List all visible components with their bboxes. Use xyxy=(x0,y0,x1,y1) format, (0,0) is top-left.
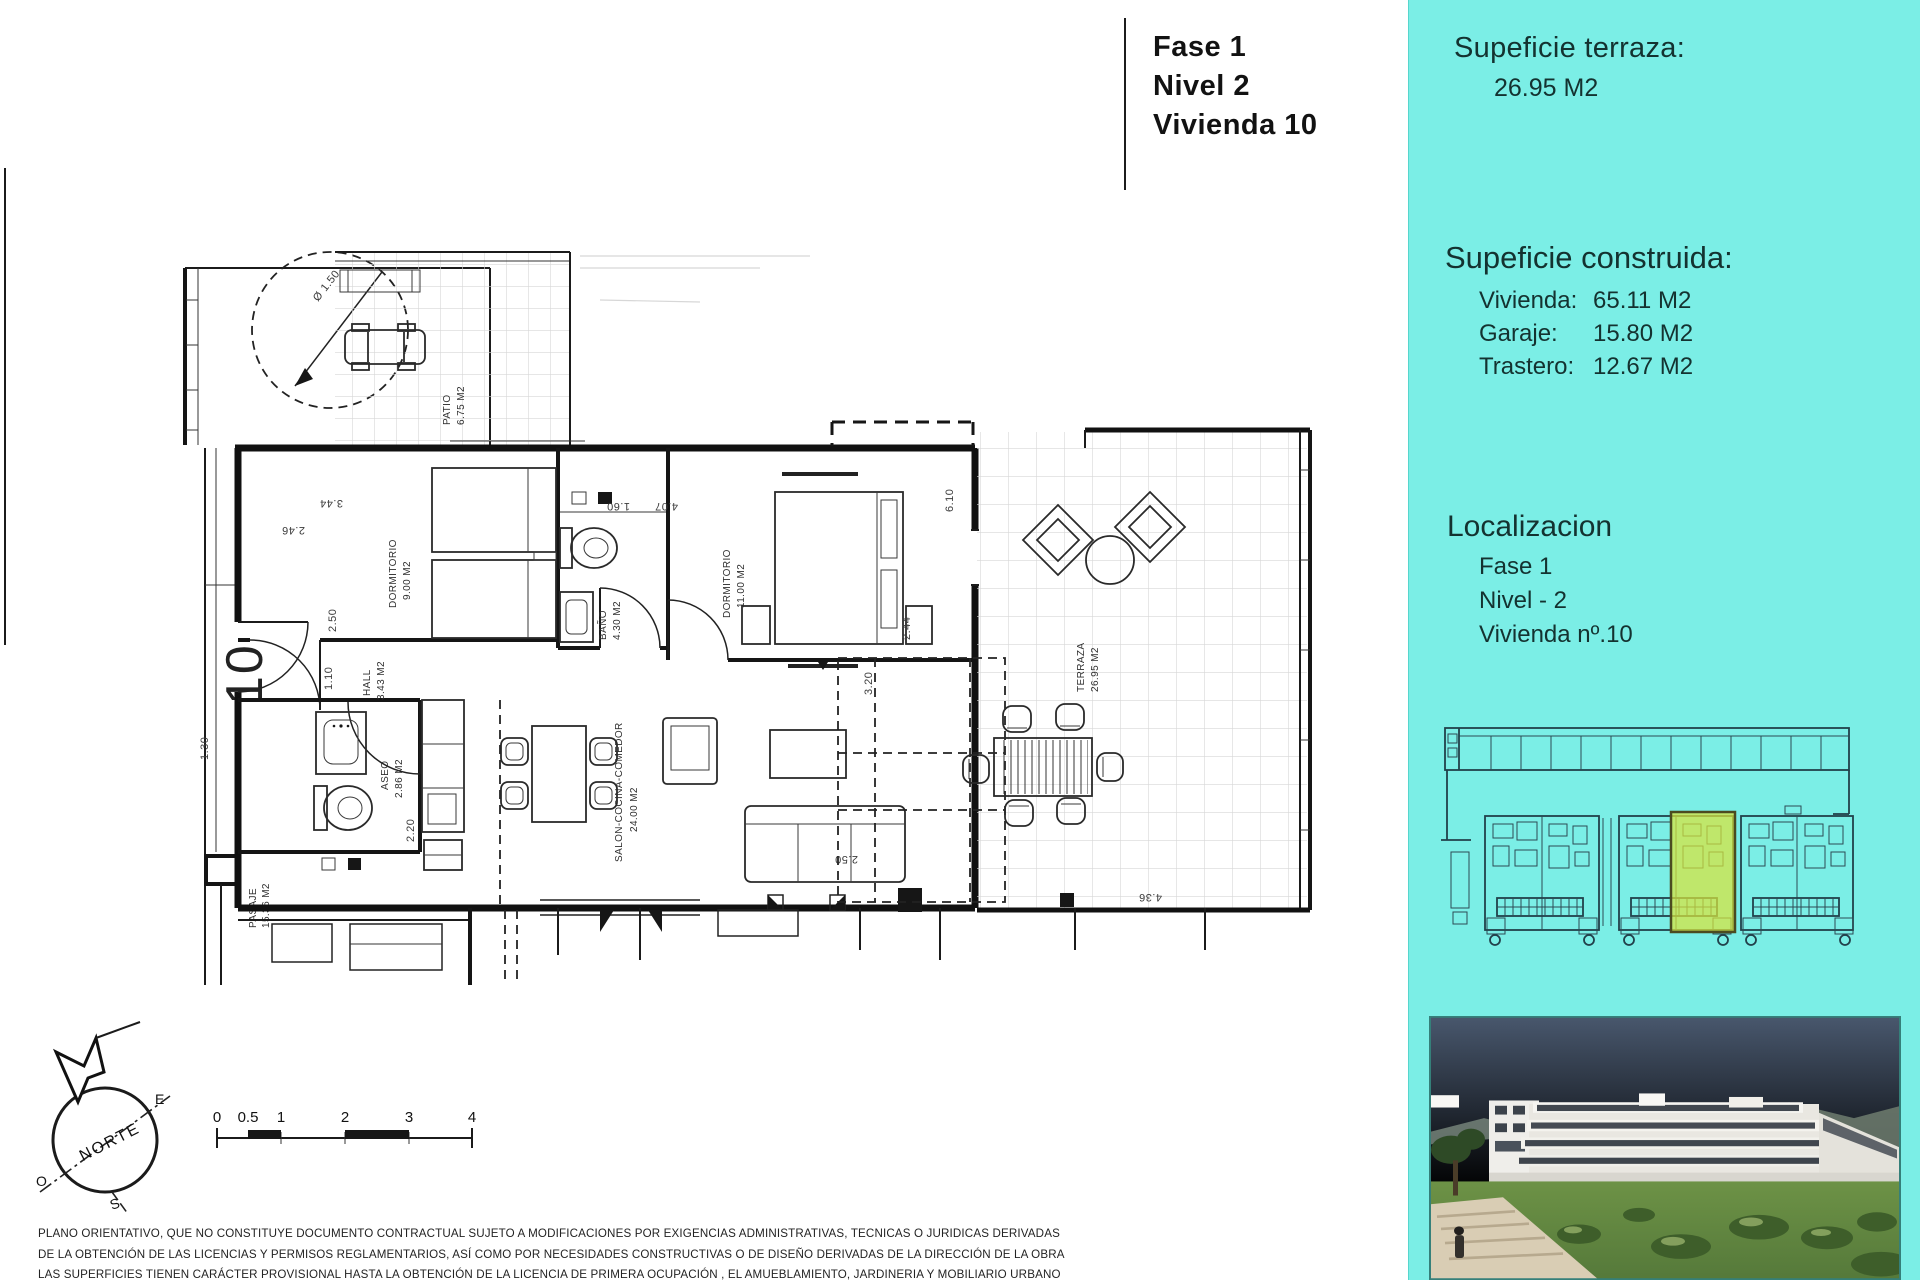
label-patio-name: PATIO xyxy=(442,394,453,425)
label-hall-name: HALL xyxy=(362,669,373,696)
scale-tick-4: 4 xyxy=(468,1109,476,1126)
toilet-icon xyxy=(560,528,617,568)
dining-chairs xyxy=(501,738,617,809)
label-dorm1-name: DORMITORIO xyxy=(388,539,399,608)
label-terraza-area: 26.95 M2 xyxy=(1090,647,1101,692)
north-arrow: NORTE E O S xyxy=(36,1022,170,1214)
sofa xyxy=(745,806,905,882)
siteplan-cluster-a xyxy=(1485,816,1599,945)
dim-320: 3.20 xyxy=(863,672,875,695)
built-row-garaje: Garaje:15.80 M2 xyxy=(1479,317,1693,350)
label-dorm2-area: 11.00 M2 xyxy=(736,564,747,608)
siteplan-garage-strip xyxy=(1441,728,1849,840)
scale-tick-0: 0 xyxy=(213,1109,221,1126)
siteplan-cluster-left-edge xyxy=(1451,852,1469,924)
label-hall-area: 3.43 M2 xyxy=(376,661,387,700)
scale-tick-1: 1 xyxy=(277,1109,285,1126)
disclaimer-line2: DE LA OBTENCIÓN DE LAS LICENCIAS Y PERMI… xyxy=(38,1245,798,1266)
photo-person xyxy=(1454,1226,1464,1258)
unit-number: 10 xyxy=(216,643,274,705)
label-salon-name: SALON-COCINA-COMEDOR xyxy=(614,722,625,862)
info-sidebar: Supeficie terraza: 26.95 M2 Supeficie co… xyxy=(1408,0,1920,1280)
dim-130: 1.30 xyxy=(199,737,211,760)
lower-units xyxy=(238,908,1205,985)
dormitorio1: DORMITORIO 9.00 M2 3.44 2.50 1.10 2.46 xyxy=(282,468,556,690)
terrace-heading: Supeficie terraza: xyxy=(1454,32,1685,65)
built-row-trastero: Trastero:12.67 M2 xyxy=(1479,350,1693,383)
scale-bar: 0 0.5 1 2 3 4 xyxy=(213,1109,476,1148)
scale-tick-2: 2 xyxy=(341,1109,349,1126)
sink-icon xyxy=(316,712,366,774)
hall: HALL 3.43 M2 xyxy=(362,661,387,700)
label-dorm1-area: 9.00 M2 xyxy=(402,561,413,600)
scale-tick-05: 0.5 xyxy=(238,1109,259,1126)
label-salon-area: 24.00 M2 xyxy=(629,787,640,832)
floor-plan: Ø 1.50 PATIO 6.75 M2 1.30 PASAJE 15.36 M… xyxy=(0,0,1410,1280)
dim-160: 1.60 xyxy=(607,500,630,512)
label-bano-area: 4.30 M2 xyxy=(612,601,623,640)
disclaimer: PLANO ORIENTATIVO, QUE NO CONSTITUYE DOC… xyxy=(38,1224,798,1286)
built-row-vivienda: Vivienda:65.11 M2 xyxy=(1479,284,1693,317)
label-aseo-name: ASEO xyxy=(380,761,391,790)
location-line-level: Nivel - 2 xyxy=(1479,584,1633,618)
dim-250: 2.50 xyxy=(327,609,339,632)
disclaimer-line1: PLANO ORIENTATIVO, QUE NO CONSTITUYE DOC… xyxy=(38,1224,798,1245)
location-line-unit: Vivienda nº.10 xyxy=(1479,618,1633,652)
label-terraza-name: TERRAZA xyxy=(1076,643,1087,692)
toilet2-icon xyxy=(314,786,372,830)
siteplan xyxy=(1433,722,1873,1012)
compass-north-label: NORTE xyxy=(77,1120,143,1165)
compass-west-label: O xyxy=(36,1173,47,1189)
disclaimer-line3: LAS SUPERFICIES TIENEN CARÁCTER PROVISIO… xyxy=(38,1265,798,1286)
dim-220: 2.20 xyxy=(405,819,417,842)
dim-246: 2.46 xyxy=(282,524,305,536)
compass-south-label: S xyxy=(108,1195,122,1213)
label-patio-area: 6.75 M2 xyxy=(456,386,467,425)
dim-407: 4.07 xyxy=(655,500,678,512)
built-rows: Vivienda:65.11 M2 Garaje:15.80 M2 Traste… xyxy=(1479,284,1693,383)
patio: PATIO 6.75 M2 xyxy=(335,252,810,445)
compass-east-label: E xyxy=(155,1091,164,1107)
aseo: ASEO 2.86 M2 xyxy=(314,712,405,870)
location-heading: Localizacion xyxy=(1447,510,1612,544)
siteplan-highlight-vivienda10 xyxy=(1671,812,1735,932)
bathroom: BAÑO 4.30 M2 1.60 xyxy=(560,492,666,642)
scale-tick-3: 3 xyxy=(405,1109,413,1126)
dormitorio2: DORMITORIO 11.00 M2 4.07 2.44 xyxy=(655,474,932,644)
built-heading: Supeficie construida: xyxy=(1445,240,1733,276)
location-line-phase: Fase 1 xyxy=(1479,550,1633,584)
dim-344: 3.44 xyxy=(320,497,343,509)
label-bano-name: BAÑO xyxy=(596,610,609,640)
dim-110: 1.10 xyxy=(323,667,335,690)
location-lines: Fase 1 Nivel - 2 Vivienda nº.10 xyxy=(1479,550,1633,652)
dim-436: 4.36 xyxy=(1139,891,1162,903)
label-aseo-area: 2.86 M2 xyxy=(394,759,405,798)
dim-244: 2.44 xyxy=(901,617,913,640)
siteplan-cluster-c xyxy=(1741,816,1853,945)
project-photo xyxy=(1429,1016,1901,1280)
terrace-value: 26.95 M2 xyxy=(1494,74,1598,103)
label-dorm2-name: DORMITORIO xyxy=(722,549,733,618)
salon: SALON-COCINA-COMEDOR 24.00 M2 2.20 2.50 … xyxy=(405,662,905,910)
siteplan-clusters xyxy=(1451,812,1853,945)
dim-610: 6.10 xyxy=(944,489,956,512)
